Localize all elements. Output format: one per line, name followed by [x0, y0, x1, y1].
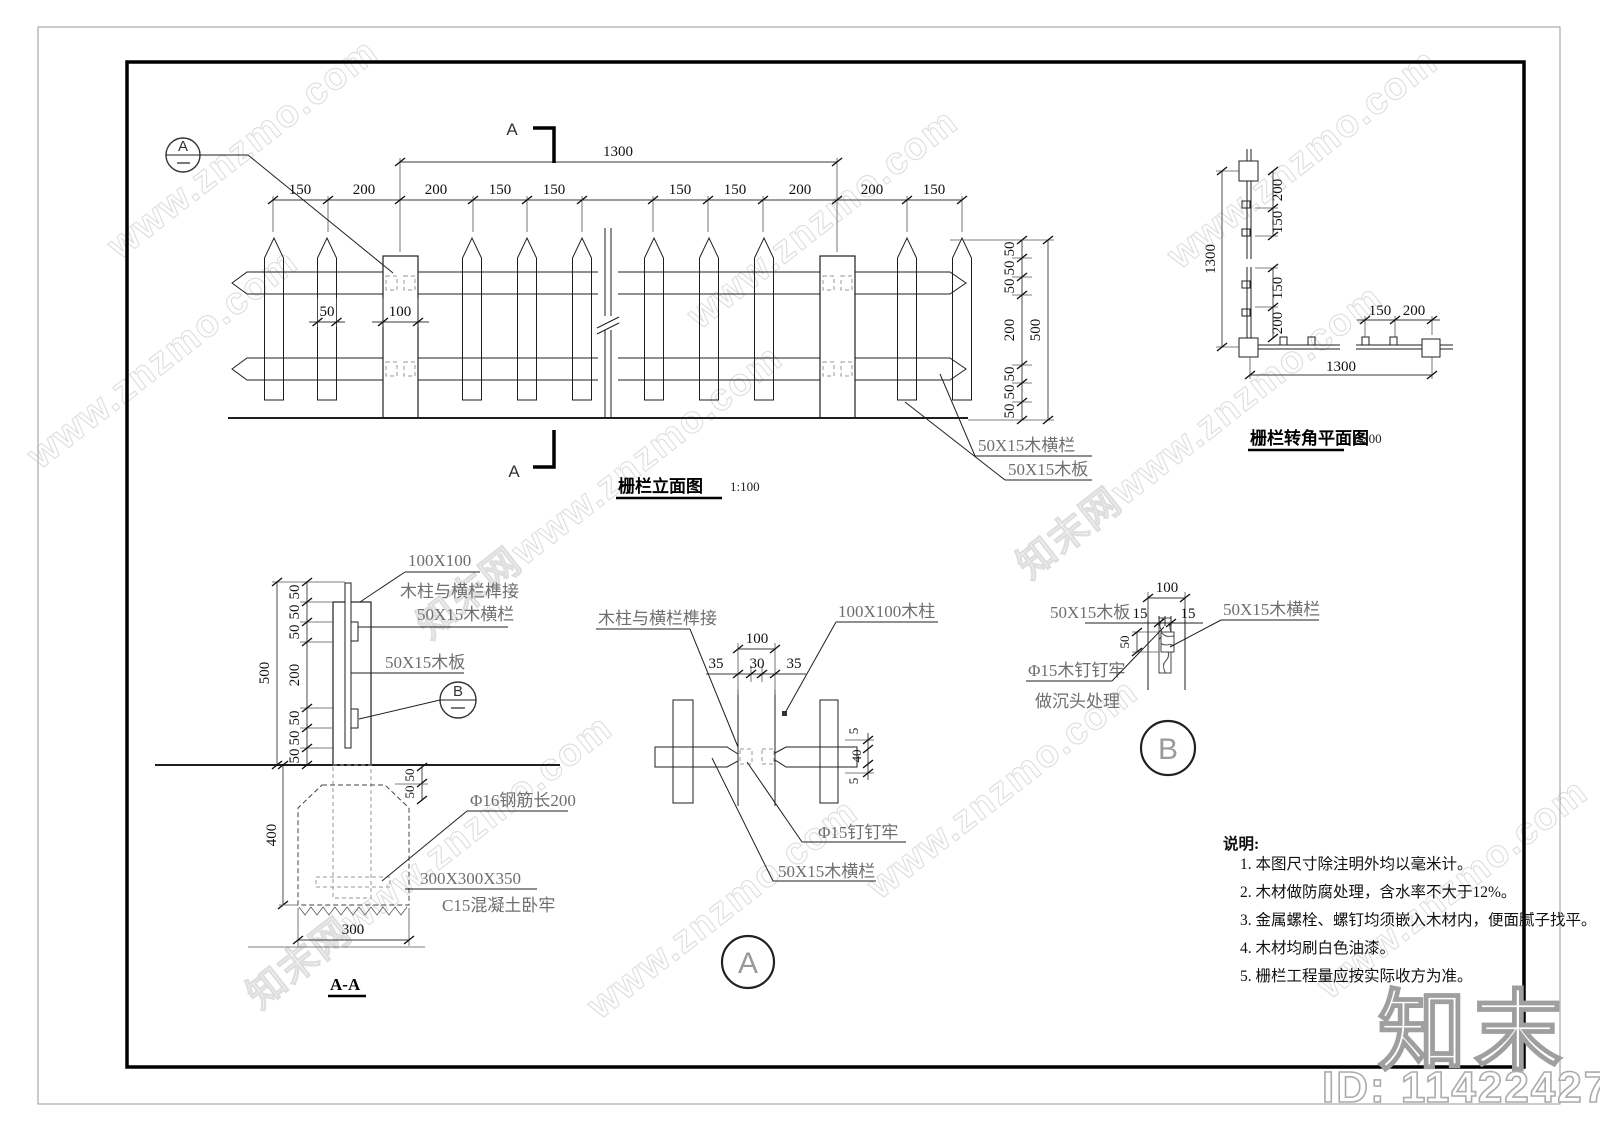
- dim-label: 50: [1002, 261, 1018, 276]
- detail-letter: B: [1158, 733, 1178, 766]
- dim-label: 150: [923, 182, 946, 198]
- footing-label: C15混凝土卧牢: [442, 896, 555, 915]
- view-scale: 1:100: [730, 479, 760, 494]
- section-letter-top: A: [506, 120, 518, 139]
- rail-label: 50X15木横栏: [778, 862, 875, 881]
- dim-label: 50: [1002, 367, 1018, 382]
- dim-label: 50: [287, 749, 303, 764]
- dim-post-width: 100: [389, 304, 412, 320]
- elevation-view: 150 200 200 150 150 150 150 200 200 150 …: [166, 120, 1092, 498]
- joint-label: 木柱与横栏榫接: [400, 582, 519, 601]
- corner-plan-title: 栅栏转角平面图 1:200: [1248, 428, 1382, 450]
- dim-label: 50: [1002, 385, 1018, 400]
- view-scale: 1:200: [1352, 431, 1382, 446]
- dim-overall: 1300: [1326, 359, 1356, 375]
- dim-label: 150: [489, 182, 512, 198]
- dim-label: 50: [1002, 279, 1018, 294]
- watermark-text: www.znzmo.com: [1159, 40, 1446, 277]
- post-label: 100X100木柱: [838, 602, 935, 621]
- id-label: ID: 1142242742: [1322, 1063, 1600, 1112]
- rebar-label: Φ16钢筋长200: [470, 791, 576, 810]
- board-label: 50X15木板: [385, 653, 465, 672]
- elevation-title: 栅栏立面图 1:100: [616, 476, 760, 498]
- dim-label: 40: [849, 750, 864, 763]
- nail-label: Φ15木钉钉牢: [1028, 661, 1125, 680]
- nail-label-2: 做沉头处理: [1035, 692, 1120, 711]
- rail-label: 50X15木横栏: [1223, 600, 1320, 619]
- dim-depth: 400: [264, 824, 280, 847]
- dim-label: 200: [1270, 179, 1286, 202]
- dim-label: 50: [287, 605, 303, 620]
- dim-label: 200: [1270, 312, 1286, 335]
- board-label: 50X15木板: [1050, 603, 1130, 622]
- dim-label: 5: [846, 778, 861, 785]
- detail-rail-left: [655, 747, 738, 767]
- dim-label: 35: [787, 656, 802, 672]
- view-title: A-A: [330, 975, 361, 994]
- detail-a-view: 100 35 30 35 5 40 5 木柱与横栏榫接 100X100木柱 Φ1…: [596, 602, 938, 988]
- note-item: 4. 木材均刷白色油漆。: [1240, 939, 1395, 957]
- detail-b-leaders: 50X15木板 50X15木横栏 Φ15木钉钉牢 做沉头处理: [1026, 600, 1320, 711]
- elevation-leaders: 50X15木横栏 50X15木板: [905, 374, 1092, 480]
- dim-label: 50: [287, 731, 303, 746]
- board-label: 50X15木板: [1008, 460, 1088, 479]
- dim-overall-width: 1300: [603, 144, 633, 160]
- dim-label: 150: [289, 182, 312, 198]
- dim-label: 150: [669, 182, 692, 198]
- detail-rail-right: [775, 747, 857, 767]
- dim-label: 150: [1270, 211, 1286, 234]
- dim-label: 50: [1002, 404, 1018, 419]
- dim-label: 35: [709, 656, 724, 672]
- view-title: 栅栏立面图: [618, 476, 703, 496]
- dim-label: 50: [1002, 242, 1018, 257]
- nail-label: Φ15钉钉牢: [818, 823, 898, 842]
- dim-label: 50: [287, 625, 303, 640]
- fence-posts: [383, 256, 855, 418]
- section-letter-bottom: A: [508, 462, 520, 481]
- site-branding: 知末 ID: 1142242742: [1322, 982, 1600, 1112]
- dim-label: 200: [861, 182, 884, 198]
- footing-size-label: 300X300X350: [420, 869, 521, 888]
- detail-a-bubble: A: [722, 936, 774, 988]
- detail-rail: [1161, 632, 1174, 652]
- dim-label: 200: [789, 182, 812, 198]
- post-size-label: 100X100: [408, 551, 471, 570]
- dim-label: 50: [402, 786, 417, 799]
- dim-overall-height: 500: [257, 662, 273, 685]
- dim-label: 200: [425, 182, 448, 198]
- dim-label: 200: [1403, 303, 1426, 319]
- dim-label: 150: [1270, 277, 1286, 300]
- detail-letter: A: [738, 947, 758, 980]
- section-post: [333, 602, 371, 765]
- dim-label: 50: [1117, 636, 1132, 649]
- dim-label: 200: [353, 182, 376, 198]
- dim-label: 150: [543, 182, 566, 198]
- dim-label: 5: [846, 728, 861, 735]
- dim-label: 100: [1156, 580, 1179, 596]
- dim-picket-width: 50: [320, 304, 335, 320]
- rail-label: 50X15木横栏: [417, 605, 514, 624]
- plan-corner-post: [1239, 338, 1258, 357]
- dim-label: 200: [1002, 319, 1018, 342]
- watermark-text: www.znzmo.com: [19, 240, 306, 477]
- elevation-right-dims: 50 50 50 200 50 50 50 500: [950, 236, 1054, 424]
- dim-label: 50: [287, 711, 303, 726]
- rail-label: 50X15木横栏: [978, 436, 1075, 455]
- dim-label: 50: [402, 769, 417, 782]
- dim-overall-height: 500: [1028, 319, 1044, 342]
- dim-label: 200: [287, 664, 303, 687]
- detail-board: [673, 700, 693, 803]
- note-item: 3. 金属螺栓、螺钉均须嵌入木材内，便面腻子找平。: [1240, 911, 1597, 929]
- note-item: 2. 木材做防腐处理，含水率不大于12%。: [1240, 883, 1516, 901]
- section-aa-title: A-A: [328, 975, 366, 996]
- joint-label: 木柱与横栏榫接: [598, 609, 717, 628]
- dim-label: 150: [724, 182, 747, 198]
- detail-a-dims: 100 35 30 35 5 40 5: [706, 631, 874, 784]
- detail-board: [820, 700, 838, 803]
- cad-drawing-sheet: www.znzmo.com www.znzmo.com 知末网www.znzmo…: [0, 0, 1600, 1131]
- notes-heading: 说明:: [1223, 834, 1259, 853]
- dim-label: 150: [1369, 303, 1392, 319]
- callout-letter: B: [453, 683, 463, 700]
- plan-post: [1422, 339, 1440, 357]
- section-board: [345, 583, 351, 748]
- dim-label: 50: [287, 585, 303, 600]
- dim-width: 300: [342, 922, 365, 938]
- note-item: 1. 本图尺寸除注明外均以毫米计。: [1240, 854, 1473, 873]
- dim-label: 15: [1133, 606, 1148, 622]
- section-marks: A A: [506, 120, 554, 481]
- drawing-canvas: www.znzmo.com www.znzmo.com 知末网www.znzmo…: [0, 0, 1600, 1131]
- dim-label: 30: [750, 656, 765, 672]
- dim-overall: 1300: [1203, 244, 1219, 274]
- break-symbol: [597, 224, 619, 420]
- detail-b-bubble: B: [1141, 721, 1195, 775]
- callout-letter: A: [178, 138, 188, 155]
- dim-label: 100: [746, 631, 769, 647]
- dim-label: 15: [1181, 606, 1196, 622]
